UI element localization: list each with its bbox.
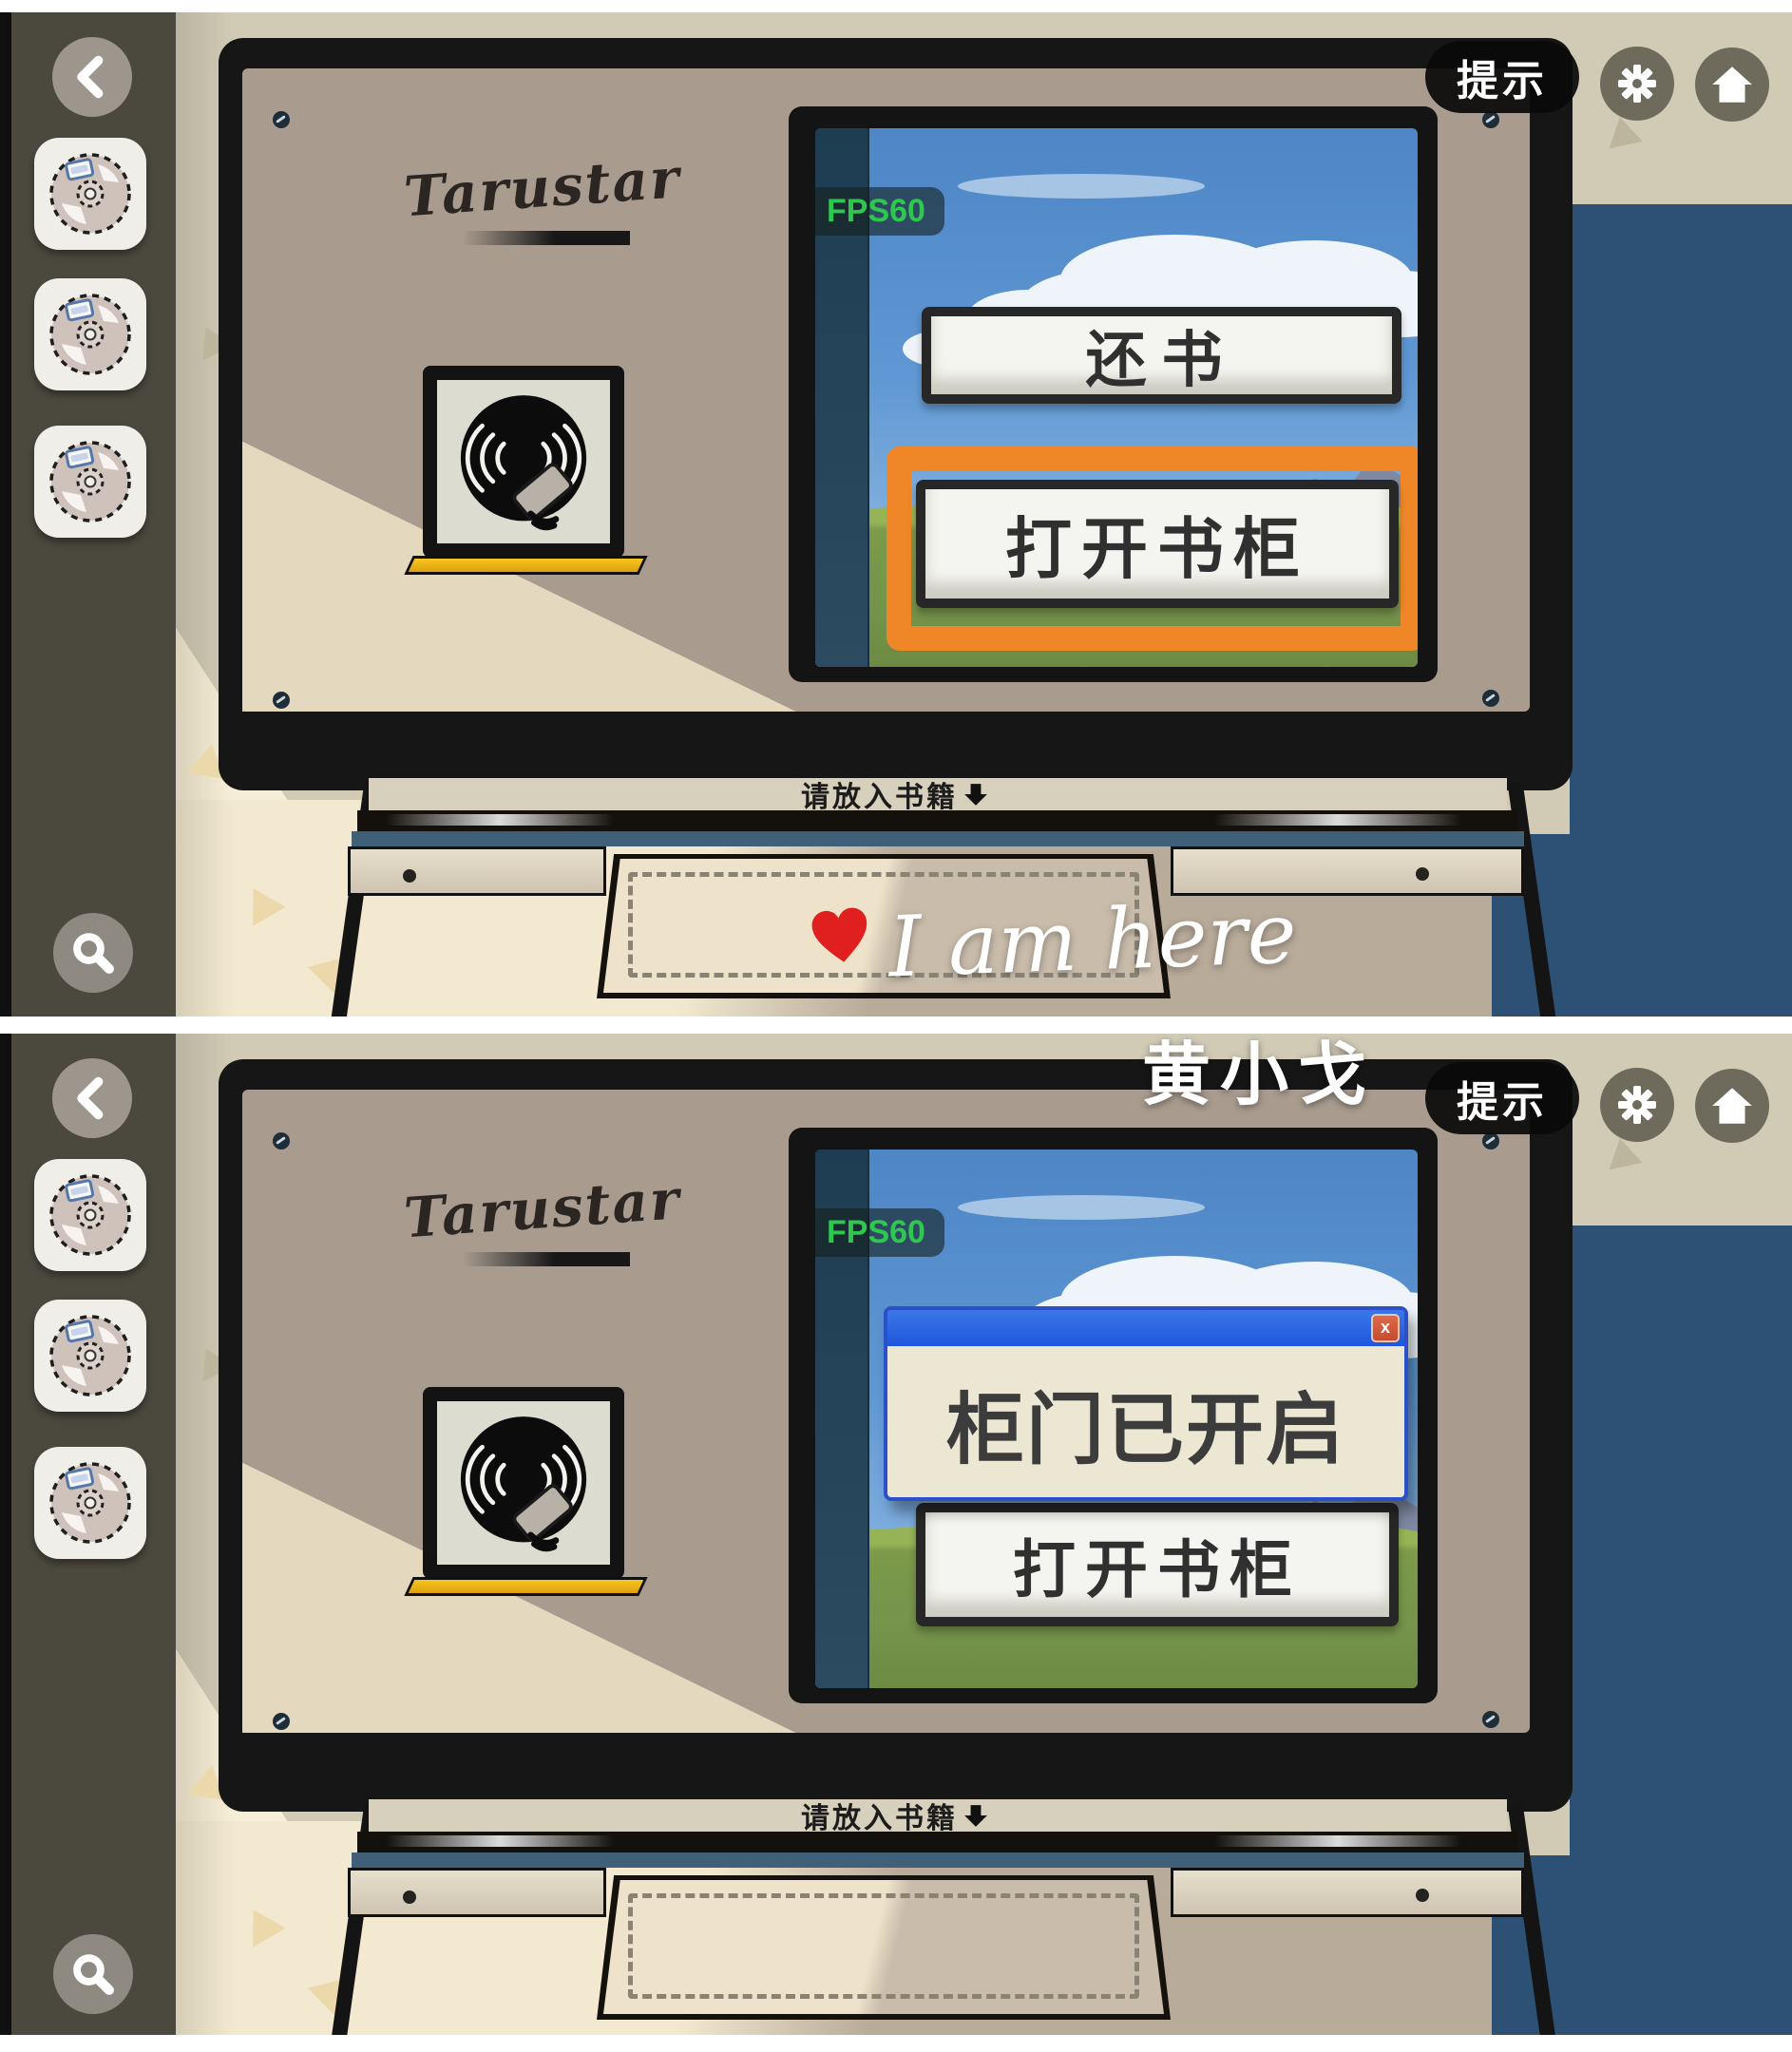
cd-icon [43, 1308, 138, 1403]
back-button[interactable] [52, 37, 132, 117]
book-slot-label: 请放入书籍 [801, 1795, 958, 1836]
cabinet-opened-dialog: x 柜门已开启 [884, 1306, 1408, 1501]
down-arrow-icon [963, 1803, 988, 1828]
game-screenshot-bottom: Tarustar FPS60 打开书柜 x [0, 1034, 1792, 2035]
inventory-disc-2[interactable] [34, 1300, 146, 1412]
back-button[interactable] [52, 1058, 132, 1138]
dialog-message: 柜门已开启 [887, 1346, 1404, 1498]
screw [273, 692, 290, 709]
screw [1482, 1711, 1499, 1728]
fps-counter: FPS60 [815, 1208, 944, 1257]
chevron-left-icon [67, 52, 117, 102]
book-slot-strip: 请放入书籍 [369, 1799, 1507, 1832]
chevron-left-icon [67, 1073, 117, 1123]
inventory-disc-3[interactable] [34, 426, 146, 538]
screenshot-stack: Tarustar FPS60 还书 打开书柜 [0, 0, 1792, 2052]
home-button[interactable] [1695, 1069, 1769, 1143]
brand-logo-bar [463, 1252, 630, 1266]
hint-button[interactable]: 提示 [1425, 41, 1579, 113]
screw [1416, 1889, 1429, 1902]
brand-logo-text: Tarustar [402, 1167, 691, 1251]
heart-icon [806, 897, 877, 976]
screw [1482, 1132, 1499, 1149]
watermark-script: I am here [886, 884, 1298, 997]
fps-counter: FPS60 [815, 187, 944, 236]
book-slot-label-row: 请放入书籍 [801, 1795, 988, 1836]
return-book-button[interactable]: 还书 [922, 307, 1401, 404]
book-slot-label-row: 请放入书籍 [801, 773, 988, 815]
kiosk-screen: FPS60 还书 打开书柜 [815, 128, 1418, 667]
base-ledge-left [348, 1868, 606, 1917]
screen-bezel: FPS60 还书 打开书柜 [789, 106, 1438, 682]
cloud [958, 1195, 1205, 1220]
book-slot-strip: 请放入书籍 [369, 778, 1507, 810]
gear-icon [1614, 1082, 1660, 1128]
open-bookcase-button[interactable]: 打开书柜 [916, 480, 1399, 608]
base-ledge-left [348, 846, 606, 896]
inventory-disc-2[interactable] [34, 278, 146, 390]
dialog-title-bar [887, 1310, 1404, 1346]
tray-surface [603, 1880, 1164, 2014]
disc-reader[interactable] [423, 366, 624, 558]
home-icon [1708, 1082, 1756, 1130]
magnifier-icon [67, 1948, 119, 2000]
home-button[interactable] [1695, 47, 1769, 122]
watermark-signature: 黄小戈 [1142, 1018, 1376, 1118]
book-slot-label: 请放入书籍 [801, 773, 958, 815]
screw [1482, 111, 1499, 128]
screw [1416, 867, 1429, 881]
base-trim [352, 1852, 1524, 1868]
cd-icon [43, 287, 138, 382]
screw [1482, 690, 1499, 707]
hint-button[interactable]: 提示 [1425, 1062, 1579, 1134]
inventory-disc-1[interactable] [34, 1159, 146, 1271]
brand-logo-text: Tarustar [402, 145, 691, 230]
cd-icon [43, 146, 138, 241]
book-slot-opening [357, 1832, 1518, 1852]
settings-button[interactable] [1600, 47, 1674, 121]
brand-logo: Tarustar [404, 155, 689, 259]
screen-edge-strip [0, 1034, 11, 2035]
tray-dashed-outline [628, 1893, 1139, 1999]
screw [403, 1890, 416, 1904]
cd-icon [43, 1168, 138, 1263]
book-slot-opening [357, 810, 1518, 831]
disc-reader-icon [440, 381, 607, 542]
game-screenshot-top: Tarustar FPS60 还书 打开书柜 [0, 12, 1792, 1016]
kiosk-screen: FPS60 打开书柜 x 柜门已开启 [815, 1149, 1418, 1688]
cd-icon [43, 434, 138, 529]
base-trim [352, 831, 1524, 846]
disc-reader-tray-bar [404, 556, 647, 575]
gear-icon [1614, 61, 1660, 106]
screw [403, 869, 416, 883]
disc-reader-tray-bar [404, 1577, 647, 1596]
magnifier-icon [67, 927, 119, 978]
screw [273, 111, 290, 128]
inventory-disc-3[interactable] [34, 1447, 146, 1559]
dialog-close-button[interactable]: x [1371, 1314, 1400, 1342]
cd-icon [43, 1455, 138, 1550]
open-bookcase-button[interactable]: 打开书柜 [916, 1503, 1399, 1626]
inventory-disc-1[interactable] [34, 138, 146, 250]
down-arrow-icon [963, 782, 988, 807]
settings-button[interactable] [1600, 1068, 1674, 1142]
disc-reader-icon [440, 1402, 607, 1564]
screen-bezel: FPS60 打开书柜 x 柜门已开启 [789, 1128, 1438, 1703]
cloud [958, 174, 1205, 199]
screw [273, 1132, 290, 1149]
home-icon [1708, 61, 1756, 108]
search-button[interactable] [53, 1934, 133, 2014]
book-deposit-tray[interactable] [597, 1875, 1171, 2020]
base-ledge-right [1171, 1868, 1524, 1917]
screw [273, 1713, 290, 1730]
disc-reader[interactable] [423, 1387, 624, 1579]
brand-logo: Tarustar [404, 1176, 689, 1281]
brand-logo-bar [463, 231, 630, 245]
screen-edge-strip [0, 12, 11, 1016]
search-button[interactable] [53, 913, 133, 993]
